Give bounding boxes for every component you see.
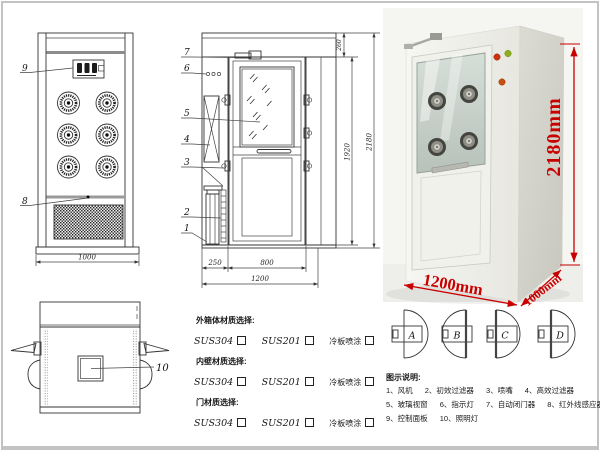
photo-nozzle — [428, 138, 446, 156]
dim-1000-label: 1000 — [78, 254, 96, 262]
dim-800-label: 800 — [260, 259, 274, 267]
material-options-row: SUS304 SUS201 冷板喷涂 — [194, 372, 384, 390]
door-option-d-label: D — [555, 331, 564, 342]
material-option-label: 冷板喷涂 — [329, 337, 361, 346]
material-checkbox[interactable] — [365, 377, 374, 386]
dim-2180-label: 2180 — [366, 133, 374, 152]
legend-item: 4、高效过滤器 — [525, 386, 574, 395]
material-section-title: 外箱体材质选择: — [196, 316, 384, 326]
primary-filter-symbol — [221, 190, 226, 242]
door-handle — [257, 150, 291, 154]
door-option-a: A — [392, 310, 428, 358]
callout-1-label: 1 — [184, 224, 190, 234]
legend-row: 5、玻璃视窗 6、指示灯 7、自动闭门器 8、红外线感应器 — [386, 398, 594, 412]
material-checkbox[interactable] — [237, 336, 246, 345]
nozzle-icon — [96, 156, 118, 178]
door-swing-options: A B C D — [392, 310, 575, 358]
material-option-label: SUS304 — [194, 377, 233, 388]
hepa-filter-symbol — [204, 96, 219, 162]
control-panel — [73, 60, 104, 78]
material-checkbox[interactable] — [305, 336, 314, 345]
material-option-label: SUS201 — [262, 418, 301, 429]
photo-nozzle — [460, 85, 478, 103]
door-option-c-label: C — [501, 331, 509, 342]
material-checkbox[interactable] — [365, 336, 374, 345]
nozzle-icon — [58, 92, 80, 114]
callout-6-label: 6 — [184, 64, 190, 74]
front-width-dimension: 1000 — [36, 254, 139, 267]
fan-symbol — [204, 186, 222, 244]
red-light — [494, 54, 500, 60]
material-checkbox[interactable] — [305, 377, 314, 386]
material-options-row: SUS304 SUS201 冷板喷涂 — [194, 331, 384, 349]
side-height-dimensions: 260 1920 2180 — [336, 33, 380, 248]
material-option-label: 冷板喷涂 — [329, 419, 361, 428]
nozzle-icon — [96, 124, 118, 146]
front-light-bar — [47, 51, 126, 54]
legend-item: 1、风机 — [386, 386, 413, 395]
door-option-d: D — [538, 310, 575, 358]
photo-nozzle — [460, 132, 478, 150]
legend-item: 5、玻璃视窗 — [386, 400, 428, 409]
material-checkbox[interactable] — [305, 418, 314, 427]
orange-light — [499, 79, 505, 85]
green-light — [505, 50, 511, 56]
glass-window — [240, 67, 294, 147]
indicator-lights — [206, 72, 220, 75]
callout-3-label: 3 — [184, 158, 190, 168]
callout-10-label: 10 — [156, 363, 169, 374]
side-nozzle-bumps — [222, 95, 312, 171]
material-option-label: 冷板喷涂 — [329, 378, 361, 387]
photo-height-label: 2180mm — [543, 97, 565, 176]
door-option-c: C — [487, 310, 520, 358]
material-section-title: 门材质选择: — [196, 398, 384, 408]
top-view-drawing: 10 — [11, 302, 169, 413]
nozzle-icon — [58, 156, 80, 178]
dim-250-label: 250 — [207, 259, 222, 267]
callout-2-label: 2 — [183, 208, 190, 218]
duct-diagonal — [202, 167, 223, 186]
product-photo: 2180mm 1200mm 1000mm — [383, 8, 583, 309]
door-option-b: B — [442, 310, 472, 358]
side-view-drawing: 7 6 5 4 3 2 1 — [181, 33, 380, 288]
legend-item: 2、初效过滤器 — [425, 386, 474, 395]
legend-item: 7、自动闭门器 — [486, 400, 535, 409]
legend-item: 10、照明灯 — [440, 414, 478, 423]
material-selection: 外箱体材质选择: SUS304 SUS201 冷板喷涂 内壁材质选择: SUS3… — [194, 316, 384, 431]
material-option-label: SUS304 — [194, 336, 233, 347]
door-option-a-label: A — [408, 331, 416, 342]
dim-1200-label: 1200 — [251, 275, 269, 283]
material-section-title: 内壁材质选择: — [196, 357, 384, 367]
material-option-label: SUS304 — [194, 418, 233, 429]
callout-7-label: 7 — [184, 48, 190, 58]
door-option-b-label: B — [453, 331, 461, 342]
door-closer-symbol — [235, 51, 261, 59]
legend-item: 6、指示灯 — [440, 400, 474, 409]
nozzle-icon — [58, 124, 80, 146]
legend-row: 1、风机 2、初效过滤器 3、喷嘴 4、高效过滤器 — [386, 384, 594, 398]
material-checkbox[interactable] — [237, 418, 246, 427]
photo-nozzle — [428, 92, 446, 110]
glass-hatching — [247, 74, 272, 139]
dim-1920-label: 1920 — [344, 143, 352, 161]
front-nozzles — [58, 92, 119, 178]
nozzle-icon — [96, 92, 118, 114]
left-wall-hatch — [43, 329, 48, 405]
right-wall-hatch — [132, 329, 137, 405]
callout-control-panel: 9 — [20, 64, 73, 74]
dim-260-label: 260 — [336, 39, 343, 52]
material-option-label: SUS201 — [262, 336, 301, 347]
legend-row: 9、控制面板 10、照明灯 — [386, 412, 594, 426]
side-brackets — [11, 342, 169, 355]
legend-title: 图示说明: — [386, 372, 594, 384]
material-checkbox[interactable] — [237, 377, 246, 386]
door-assembly — [229, 51, 305, 245]
air-shower-spec-sheet: 9 — [0, 0, 600, 450]
front-view-drawing: 9 — [20, 33, 139, 266]
material-option-label: SUS201 — [262, 377, 301, 388]
return-air-grille — [54, 205, 123, 239]
legend-item: 8、红外线感应器 — [547, 400, 600, 409]
callout-4-label: 4 — [183, 135, 190, 145]
legend-notes: 图示说明: 1、风机 2、初效过滤器 3、喷嘴 4、高效过滤器 5、玻璃视窗 6… — [386, 372, 594, 426]
material-checkbox[interactable] — [365, 418, 374, 427]
legend-item: 3、喷嘴 — [486, 386, 513, 395]
legend-item: 9、控制面板 — [386, 414, 428, 423]
material-options-row: SUS304 SUS201 冷板喷涂 — [194, 413, 384, 431]
side-width-dimensions: 250 800 1200 — [202, 246, 318, 288]
callout-5-label: 5 — [184, 109, 190, 119]
